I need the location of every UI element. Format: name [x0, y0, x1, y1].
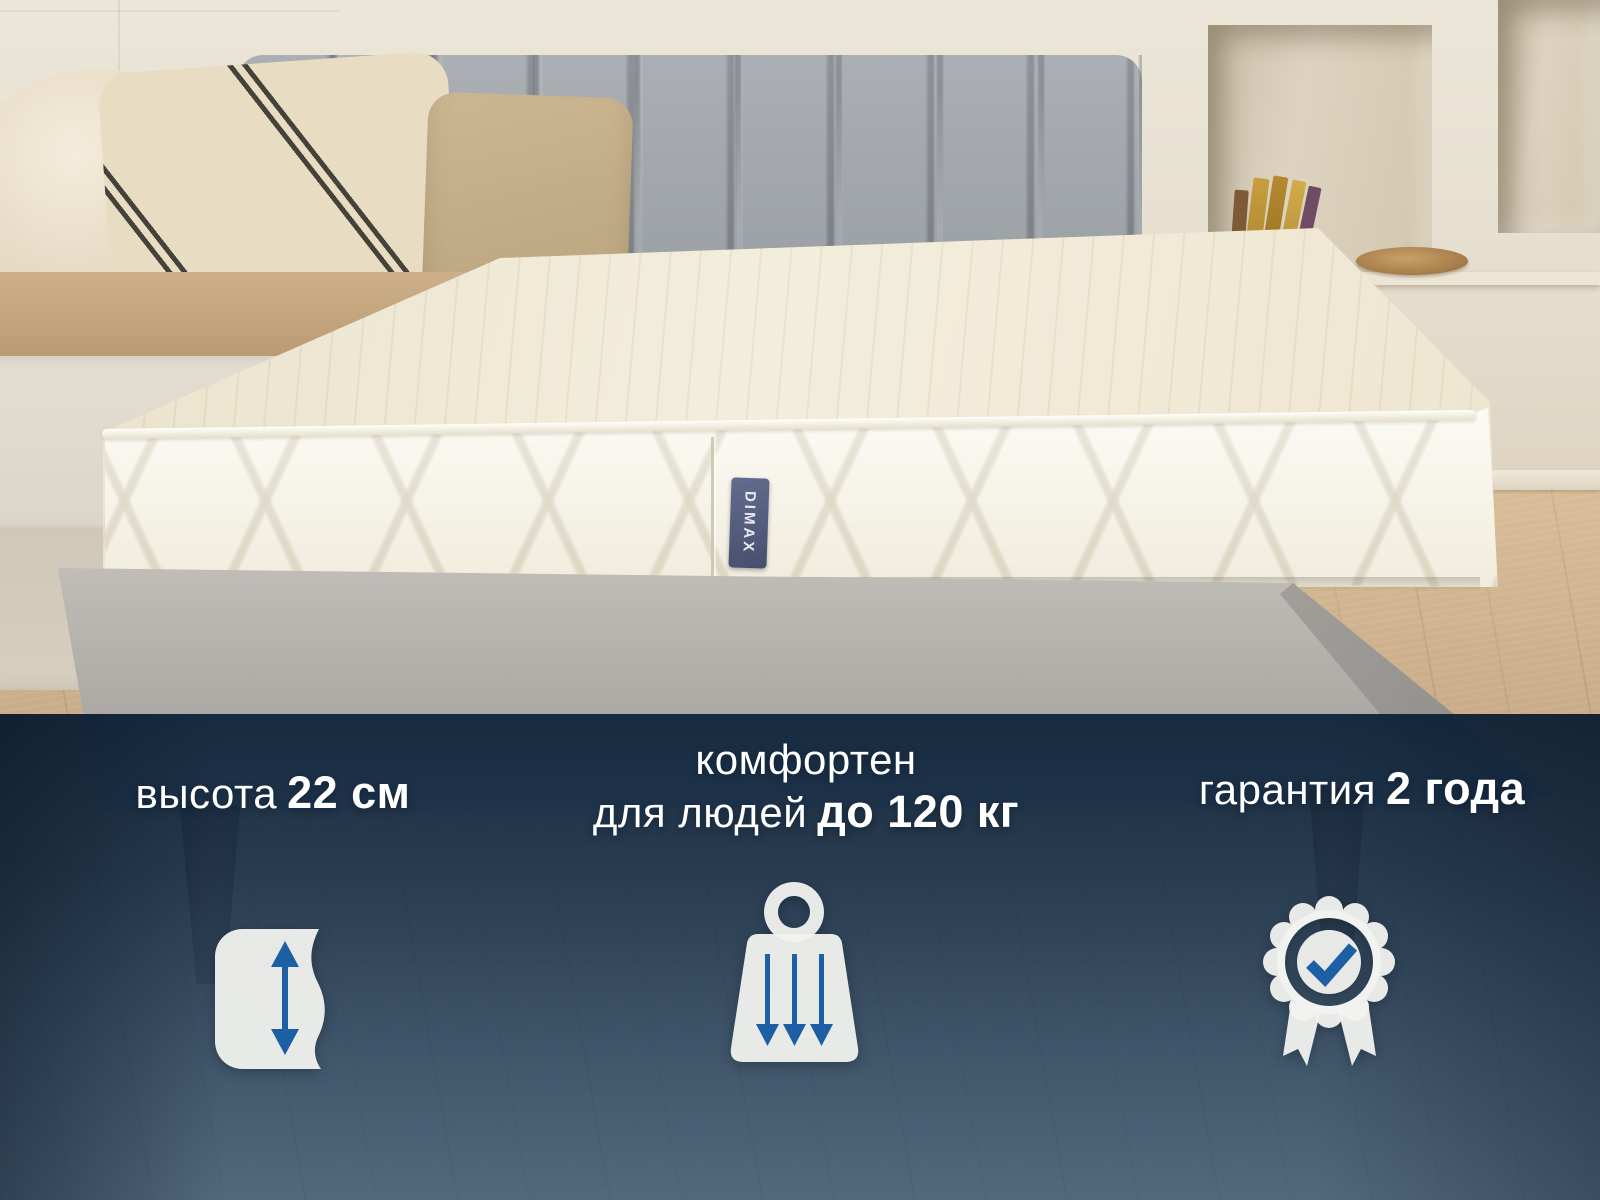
- mattress-center-seam: [711, 437, 714, 583]
- wall-niche-shelf: [1498, 0, 1600, 233]
- feature-warranty-value: 2 года: [1386, 763, 1525, 814]
- feature-comfort-line1: комфортен: [593, 734, 1019, 786]
- feature-height-text: высота22 см: [136, 767, 411, 819]
- feature-warranty-text: гарантия2 года: [1199, 763, 1525, 815]
- quality-ribbon-badge-icon: [1247, 884, 1412, 1079]
- promo-image: DIMAX высота22 см комфортен для людейдо …: [0, 0, 1600, 1200]
- weight-pressure-icon: [712, 878, 877, 1073]
- brand-tag-label: DIMAX: [739, 491, 758, 555]
- feature-comfort-line2: для людейдо 120 кг: [593, 786, 1019, 839]
- feature-comfort-line2-value: до 120 кг: [817, 786, 1019, 837]
- feature-warranty-label: гарантия: [1199, 766, 1376, 813]
- brand-tag: DIMAX: [728, 477, 769, 568]
- feature-comfort-line2-label: для людей: [593, 789, 807, 836]
- feature-comfort-text: комфортен для людейдо 120 кг: [593, 734, 1019, 839]
- mattress-height-arrow-icon: [213, 927, 343, 1069]
- wall-trim-line: [0, 10, 340, 12]
- feature-height-label: высота: [136, 770, 278, 817]
- wood-slice-decor: [1356, 247, 1468, 275]
- feature-height-value: 22 см: [287, 767, 410, 818]
